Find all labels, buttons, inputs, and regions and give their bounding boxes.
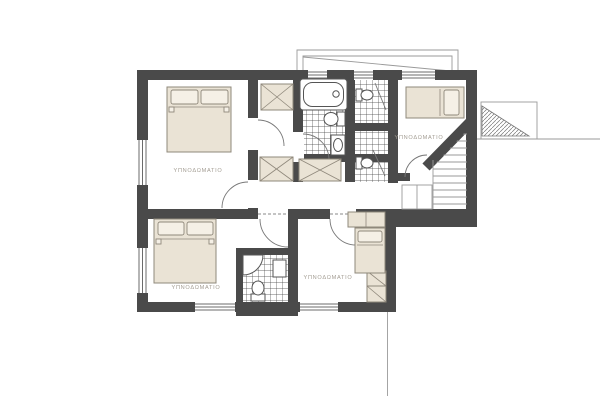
room-label-bedroom-bottom-left: ΥΠΝΟΔΩΜΑΤΙΟ [172, 285, 221, 291]
bed-top-left [167, 87, 231, 152]
wall-bottom-bath-bump [236, 302, 298, 316]
sink-icon-bath1 [331, 135, 345, 155]
toilet-icon-bath1 [324, 112, 345, 126]
wall-mid-band [137, 209, 477, 219]
wall-bottom-rooms-divider [288, 219, 298, 302]
window-top-2 [354, 70, 373, 80]
bathroom2-lower-tiles [355, 131, 388, 154]
wall-ensuite-top [236, 248, 298, 255]
dresser-bedroom-br [348, 212, 385, 227]
toilet-icon-bath2-upper [356, 89, 373, 101]
sink-icon-ensuite [273, 260, 286, 277]
toilet-icon-ensuite [251, 281, 265, 301]
room-label-bedroom-top-right: ΥΠΝΟΔΩΜΑΤΙΟ [395, 135, 444, 141]
staircase [402, 134, 467, 209]
wall-D [388, 70, 398, 183]
window-top-3 [402, 70, 435, 80]
bathtub-icon [300, 79, 347, 110]
door-arc-bedroom-tl [222, 182, 248, 208]
floor-plan-canvas: ΥΠΝΟΔΩΜΑΤΙΟ ΥΠΝΟΔΩΜΑΤΙΟ ΥΠΝΟΔΩΜΑΤΙΟ ΥΠΝΟ… [0, 0, 600, 400]
closet-corridor [299, 159, 341, 181]
wall-right [466, 70, 477, 227]
wall-stair-bottom [388, 219, 477, 227]
window-left-2 [137, 248, 148, 293]
window-left-1 [137, 140, 148, 185]
wall-bedroom-tr-bottom [388, 173, 410, 181]
wall-bath2-divider [355, 123, 388, 131]
bed-bottom-left [154, 219, 216, 283]
floor-plan-page: ΥΠΝΟΔΩΜΑΤΙΟ ΥΠΝΟΔΩΜΑΤΙΟ ΥΠΝΟΔΩΜΑΤΙΟ ΥΠΝΟ… [0, 0, 600, 400]
door-arc-bedroom-bl [260, 219, 288, 247]
wall-bedroom-br-right [385, 219, 396, 312]
closet-nook-bottom [260, 157, 293, 181]
window-bottom-1 [195, 302, 235, 312]
wall-ensuite-left [236, 248, 243, 306]
hatched-triangle [482, 106, 529, 136]
window-bottom-2 [300, 302, 338, 312]
room-label-bedroom-bottom-right: ΥΠΝΟΔΩΜΑΤΙΟ [304, 275, 353, 281]
closet-nook-top [261, 84, 293, 110]
door-arc-nook [258, 120, 284, 146]
bed-top-right [406, 87, 464, 118]
balcony-outline [297, 50, 458, 71]
toilet-icon-bath2-lower [356, 157, 373, 169]
closet-bedroom-br [367, 271, 386, 302]
side-roof-hatch [477, 102, 600, 139]
bed-bottom-right [348, 212, 385, 273]
room-label-bedroom-top-left: ΥΠΝΟΔΩΜΑΤΙΟ [174, 168, 223, 174]
